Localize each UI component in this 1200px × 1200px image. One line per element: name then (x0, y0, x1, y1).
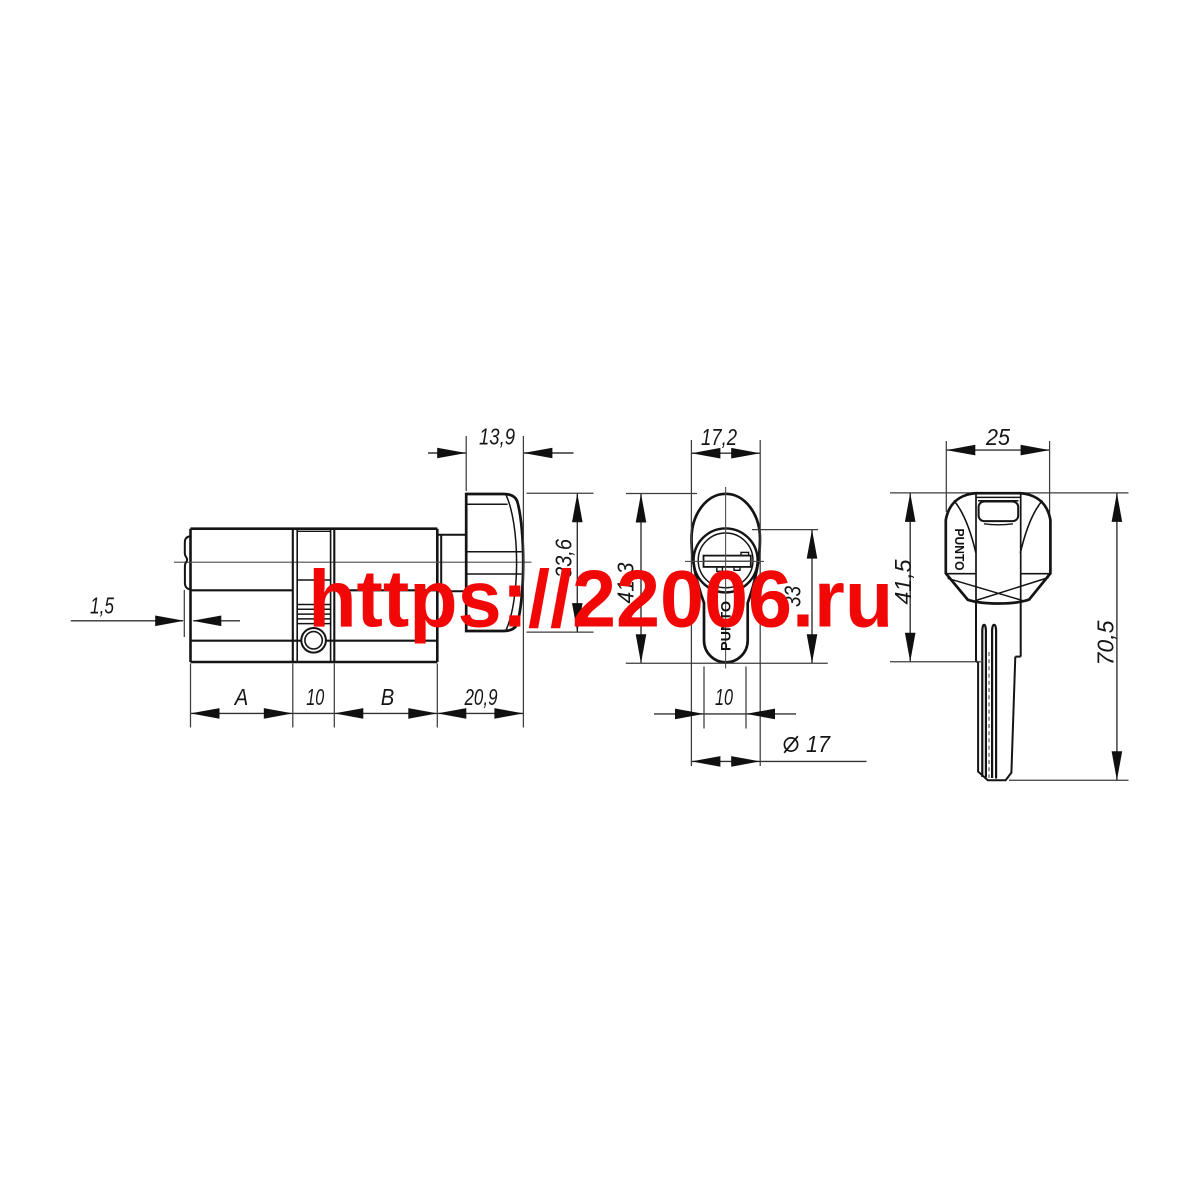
svg-text:70,5: 70,5 (1093, 620, 1119, 666)
svg-text:20,9: 20,9 (464, 684, 498, 710)
svg-text:https://22006.ru: https://22006.ru (308, 555, 893, 645)
svg-text:A: A (233, 684, 248, 710)
svg-text:17: 17 (806, 731, 831, 757)
svg-text:17,2: 17,2 (701, 424, 737, 450)
svg-text:10: 10 (306, 684, 324, 710)
svg-text:13,9: 13,9 (479, 424, 515, 450)
svg-text:PUNTO: PUNTO (952, 529, 967, 571)
svg-text:10: 10 (715, 684, 733, 710)
svg-text:25: 25 (985, 424, 1011, 450)
svg-text:1,5: 1,5 (90, 593, 115, 619)
svg-text:B: B (381, 684, 395, 710)
svg-text:41,5: 41,5 (890, 559, 916, 605)
